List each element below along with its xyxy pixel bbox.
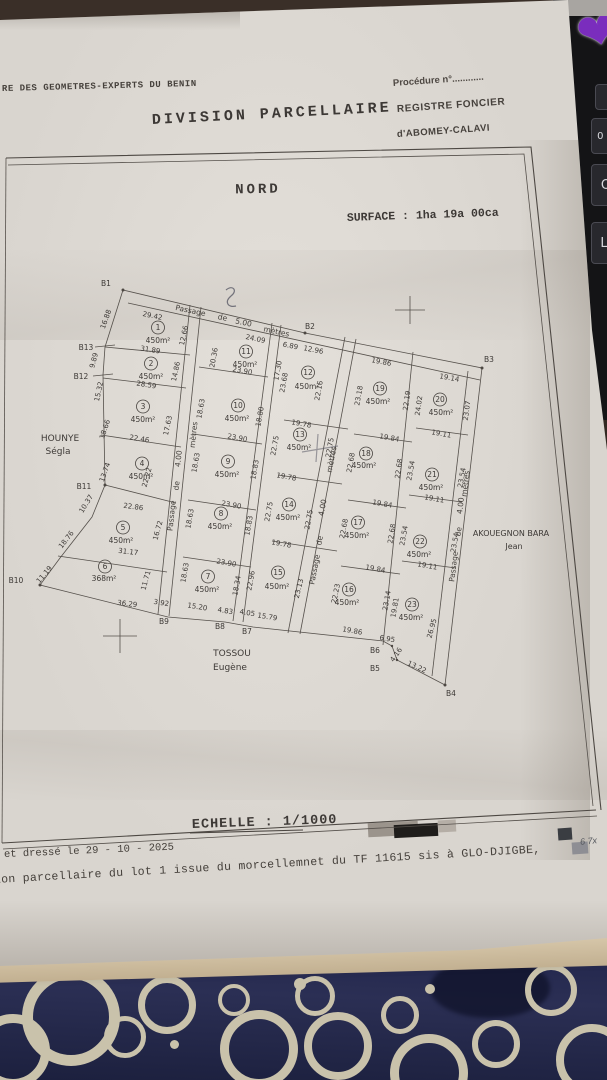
svg-text:18.63: 18.63: [190, 452, 201, 473]
svg-text:19.11: 19.11: [417, 560, 438, 571]
svg-text:23.13: 23.13: [293, 578, 306, 599]
svg-text:16: 16: [344, 585, 354, 594]
svg-text:6.95: 6.95: [379, 634, 396, 644]
svg-text:5: 5: [121, 523, 126, 532]
svg-text:450m²: 450m²: [429, 408, 454, 417]
svg-text:18.34: 18.34: [231, 575, 242, 597]
svg-text:TOSSOU: TOSSOU: [212, 649, 251, 659]
svg-text:15.20: 15.20: [187, 602, 208, 613]
svg-text:18.83: 18.83: [249, 459, 260, 480]
svg-text:AKOUEGNON BARA: AKOUEGNON BARA: [473, 529, 550, 538]
svg-text:B3: B3: [484, 355, 494, 364]
svg-text:19: 19: [375, 384, 385, 393]
photo-of-survey-document: { "background": { "keyboard_keys": ["0 à…: [0, 0, 607, 1080]
scale-label: ECHELLE : 1/1000: [192, 813, 338, 833]
svg-text:9: 9: [226, 457, 231, 466]
svg-text:Eugène: Eugène: [213, 662, 247, 673]
svg-text:11.19: 11.19: [35, 564, 54, 584]
svg-text:19.84: 19.84: [372, 498, 394, 509]
svg-text:19.11: 19.11: [424, 493, 445, 504]
svg-text:23: 23: [407, 600, 417, 609]
parcel-lines: [39, 289, 484, 687]
svg-text:31.17: 31.17: [118, 547, 139, 557]
svg-text:450m²: 450m²: [407, 550, 432, 559]
svg-text:18.76: 18.76: [57, 529, 76, 550]
svg-text:368m²: 368m²: [92, 574, 117, 583]
svg-text:1: 1: [156, 323, 161, 332]
svg-text:7: 7: [206, 572, 211, 581]
svg-text:450m²: 450m²: [265, 582, 290, 591]
svg-text:29.42: 29.42: [142, 310, 163, 322]
svg-text:14: 14: [284, 500, 294, 509]
svg-text:Passage: Passage: [165, 500, 177, 532]
svg-text:B4: B4: [446, 689, 456, 698]
svg-text:450m²: 450m²: [146, 336, 171, 345]
svg-text:B6: B6: [370, 646, 380, 655]
svg-text:450m²: 450m²: [208, 522, 233, 531]
svg-text:B9: B9: [159, 617, 169, 626]
svg-text:450m²: 450m²: [225, 414, 250, 423]
svg-text:15.79: 15.79: [257, 612, 278, 623]
svg-text:23.90: 23.90: [221, 499, 242, 510]
svg-text:19.84: 19.84: [379, 432, 401, 443]
svg-text:19.78: 19.78: [291, 418, 312, 429]
svg-text:14.86: 14.86: [170, 360, 182, 382]
svg-text:450m²: 450m²: [195, 585, 220, 594]
svg-text:9.89: 9.89: [88, 352, 100, 369]
svg-text:B7: B7: [242, 627, 252, 636]
svg-text:19.11: 19.11: [431, 428, 452, 439]
svg-text:450m²: 450m²: [399, 613, 424, 622]
svg-text:11: 11: [241, 347, 251, 356]
svg-text:Jean: Jean: [504, 542, 522, 551]
svg-text:Ségla: Ségla: [46, 446, 71, 457]
svg-text:16.72: 16.72: [152, 520, 165, 541]
svg-text:de: de: [172, 480, 182, 491]
svg-text:22.68: 22.68: [387, 523, 398, 544]
svg-text:13.22: 13.22: [406, 659, 428, 675]
svg-text:20: 20: [435, 395, 445, 404]
svg-text:22.96: 22.96: [245, 570, 256, 592]
svg-text:Passage: Passage: [175, 303, 207, 318]
svg-text:450m²: 450m²: [352, 461, 377, 470]
svg-text:de: de: [217, 312, 228, 323]
svg-text:4.16: 4.16: [389, 646, 405, 664]
svg-text:450m²: 450m²: [345, 531, 370, 540]
svg-text:B12: B12: [74, 372, 89, 381]
svg-text:36.29: 36.29: [117, 599, 138, 609]
svg-text:4.00: 4.00: [317, 498, 329, 516]
svg-text:B13: B13: [79, 343, 94, 352]
svg-text:3: 3: [141, 402, 146, 411]
svg-text:13: 13: [295, 430, 305, 439]
svg-text:31.89: 31.89: [140, 345, 161, 356]
svg-text:24.09: 24.09: [245, 333, 266, 345]
svg-text:13.74: 13.74: [98, 461, 113, 483]
svg-text:450m²: 450m²: [366, 397, 391, 406]
svg-text:23.54: 23.54: [405, 460, 416, 482]
svg-text:6: 6: [103, 562, 108, 571]
svg-text:22.75: 22.75: [303, 509, 314, 530]
svg-text:15: 15: [273, 568, 283, 577]
svg-text:17.63: 17.63: [162, 415, 174, 436]
svg-text:24.02: 24.02: [414, 395, 425, 416]
svg-text:B11: B11: [77, 482, 92, 491]
svg-text:B10: B10: [9, 576, 24, 585]
svg-text:B8: B8: [215, 622, 225, 631]
svg-text:10: 10: [233, 401, 243, 410]
svg-text:20.36: 20.36: [208, 347, 219, 369]
svg-text:B1: B1: [101, 279, 111, 288]
svg-text:HOUNYE: HOUNYE: [41, 434, 80, 444]
svg-text:4.00: 4.00: [455, 497, 466, 515]
svg-text:Passage: Passage: [447, 551, 460, 583]
svg-text:18.63: 18.63: [184, 508, 195, 529]
svg-text:8: 8: [219, 509, 224, 518]
svg-text:18: 18: [361, 449, 371, 458]
svg-text:450m²: 450m²: [215, 470, 240, 479]
svg-text:450m²: 450m²: [276, 513, 301, 522]
svg-text:B5: B5: [370, 664, 380, 673]
svg-text:450m²: 450m²: [287, 443, 312, 452]
svg-text:2: 2: [149, 359, 154, 368]
svg-text:4: 4: [140, 459, 145, 468]
svg-text:19.86: 19.86: [342, 625, 364, 636]
svg-text:Passage: Passage: [307, 553, 322, 585]
svg-text:4.83: 4.83: [217, 606, 234, 616]
passage-label-top: Passage de 5.00 mètres: [175, 303, 291, 339]
svg-text:23.18: 23.18: [353, 385, 364, 406]
surface-label: SURFACE : 1ha 19a 00ca: [347, 207, 499, 225]
svg-text:22.75: 22.75: [269, 435, 280, 456]
svg-text:18.80: 18.80: [254, 406, 265, 427]
svg-text:mètres: mètres: [263, 324, 291, 338]
svg-text:23.07: 23.07: [462, 400, 473, 421]
svg-text:18.63: 18.63: [179, 562, 190, 583]
svg-text:19.86: 19.86: [371, 356, 393, 368]
svg-text:28.59: 28.59: [136, 380, 157, 391]
svg-text:19.78: 19.78: [271, 538, 292, 549]
north-label: NORD: [235, 182, 281, 199]
svg-text:19.78: 19.78: [276, 471, 297, 482]
svg-text:18.63: 18.63: [195, 398, 206, 419]
svg-text:19.14: 19.14: [439, 372, 461, 383]
svg-text:18.66: 18.66: [98, 418, 112, 440]
svg-text:21: 21: [427, 470, 437, 479]
svg-text:4.05: 4.05: [239, 608, 256, 618]
parcel-plan-drawing: NORD SURFACE : 1ha 19a 00ca ECHELLE : 1/…: [0, 0, 607, 1080]
svg-text:22: 22: [415, 537, 425, 546]
svg-text:450m²: 450m²: [109, 536, 134, 545]
svg-text:22.68: 22.68: [394, 458, 405, 479]
svg-text:6.89: 6.89: [282, 341, 299, 352]
svg-text:3.92: 3.92: [153, 598, 170, 608]
svg-text:17: 17: [353, 518, 363, 527]
svg-text:4.00: 4.00: [173, 450, 184, 468]
svg-text:450m²: 450m²: [419, 483, 444, 492]
svg-text:B2: B2: [305, 322, 315, 331]
svg-text:de: de: [314, 535, 325, 546]
svg-text:12.96: 12.96: [303, 344, 325, 356]
svg-text:12: 12: [303, 368, 313, 377]
svg-text:11.71: 11.71: [140, 570, 153, 591]
svg-text:23.54: 23.54: [449, 532, 460, 554]
svg-text:22.75: 22.75: [263, 501, 274, 522]
svg-text:450m²: 450m²: [131, 415, 156, 424]
handwritten-mark: [226, 288, 236, 307]
svg-text:23.90: 23.90: [216, 557, 237, 568]
svg-text:mètres: mètres: [188, 421, 200, 448]
svg-text:12.66: 12.66: [178, 324, 190, 346]
svg-text:19.84: 19.84: [365, 563, 387, 574]
svg-text:22.46: 22.46: [129, 434, 151, 445]
svg-text:22.86: 22.86: [123, 502, 144, 513]
svg-text:22.68: 22.68: [345, 452, 356, 473]
svg-text:22.19: 22.19: [402, 390, 413, 411]
svg-text:23.54: 23.54: [398, 525, 409, 547]
svg-text:18.83: 18.83: [243, 515, 254, 536]
svg-text:10.37: 10.37: [78, 493, 95, 514]
svg-text:23.90: 23.90: [227, 432, 248, 443]
